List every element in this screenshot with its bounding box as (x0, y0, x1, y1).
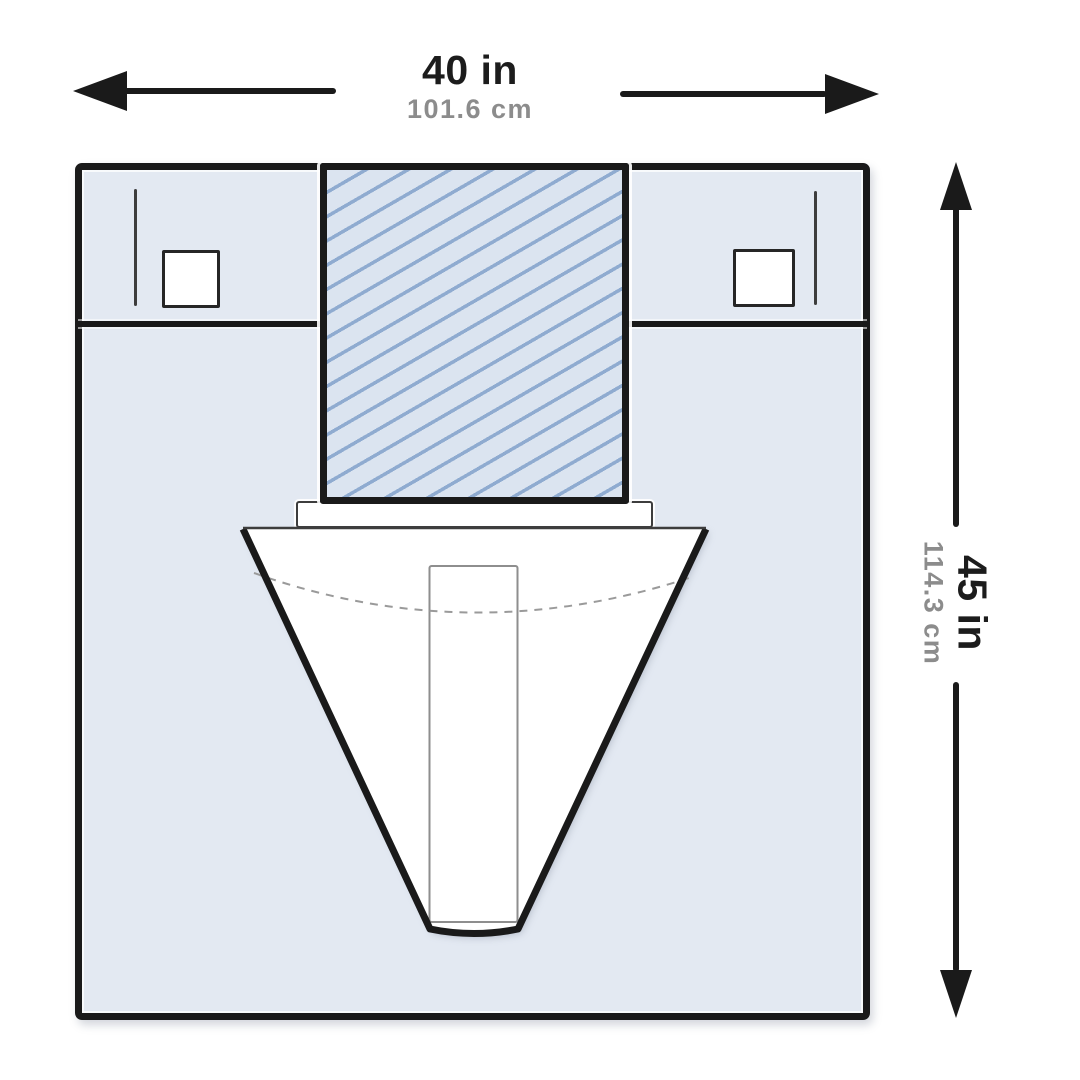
width-label-inches: 40 in (350, 50, 590, 91)
adhesive-tab-right (733, 249, 795, 307)
pouch-collar (296, 501, 653, 528)
height-arrow-lower-shaft (953, 682, 959, 972)
left-flap-fold-line (134, 189, 137, 306)
fenestration-panel (320, 163, 629, 504)
height-label-inches: 45 in (952, 503, 993, 703)
height-arrow-upper-shaft (953, 200, 959, 527)
width-label: 40 in 101.6 cm (350, 50, 590, 123)
height-label-centimeters: 114.3 cm (920, 503, 947, 703)
adhesive-tab-left (162, 250, 220, 308)
width-label-centimeters: 101.6 cm (350, 96, 590, 123)
height-label: 45 in 114.3 cm (920, 503, 993, 703)
height-arrow-down-icon (940, 970, 972, 1018)
width-arrow-right-shaft (620, 91, 827, 97)
width-arrow-right-icon (825, 74, 879, 114)
width-arrow-left-shaft (90, 88, 336, 94)
product-diagram: 40 in 101.6 cm 45 in 114.3 cm (0, 0, 1080, 1080)
right-flap-fold-line (814, 191, 817, 305)
